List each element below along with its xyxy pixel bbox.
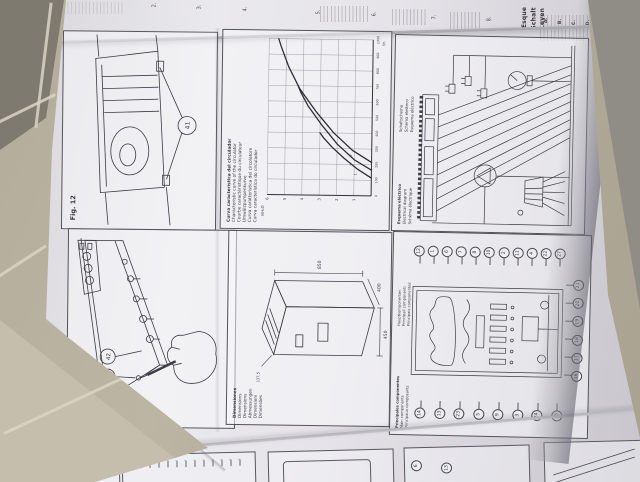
pump-curve-series-3: [277, 39, 373, 163]
pump-curve-rotated-content: Curva característica del circulador Char…: [221, 30, 392, 230]
dimension-width: 450: [383, 330, 389, 339]
dimensions-caption: Dimensões: [258, 395, 263, 418]
callout-circle: 4: [526, 248, 537, 259]
components-caption: Principaux composants: [405, 385, 410, 428]
top-strip-label: Esque: [521, 7, 528, 28]
top-strip-label: 6.: [371, 12, 377, 17]
y-tick-label: 4: [299, 197, 304, 200]
pump-curve-series-2: [297, 86, 373, 171]
y-tick-label: 5: [282, 197, 287, 200]
x-tick-label: 900: [376, 53, 380, 59]
terminal-block: [420, 95, 439, 221]
top-strip-label: 4.: [242, 7, 248, 12]
panel-fig12: Fig. 12 41: [61, 30, 218, 231]
callout-circle: 13: [434, 408, 445, 419]
tiny-text-texture: [450, 12, 480, 29]
series-label: 2: [350, 164, 354, 166]
panel-dimensions: Dimensiones Dimensions Dimensions Abmess…: [226, 230, 393, 427]
pump-curve-series-1: [319, 133, 372, 178]
top-strip-label: 5.: [315, 10, 321, 15]
dimension-lines: [261, 269, 383, 368]
x-tick-label: 1000: [376, 36, 380, 44]
boiler-side-face: [274, 281, 374, 308]
x-tick-label: 200: [374, 162, 378, 168]
electrical-caption: Schéma électrique: [407, 187, 413, 224]
fig12-label: Fig. 12: [69, 195, 77, 220]
x-tick-label: 700: [376, 84, 380, 90]
tile-grout-line: [0, 244, 47, 280]
callout-circle: 14: [414, 407, 425, 418]
callout-circle: 13: [441, 462, 452, 473]
dimensions-rotated-content: Dimensiones Dimensions Dimensions Abmess…: [227, 231, 392, 426]
callout-circle: 6: [411, 460, 422, 471]
top-strip-label: 8.: [486, 16, 492, 21]
series-label: 1: [354, 173, 358, 175]
callout-circle: 1: [428, 246, 439, 257]
next-page-panel: 6 13: [404, 444, 531, 482]
callout-circle: 6: [442, 246, 453, 257]
pump-curve-chart: Curva característica del circulador Char…: [221, 30, 392, 230]
callout-circle: 10: [484, 247, 495, 258]
panel-pump-curve: Curva característica del circulador Char…: [220, 29, 393, 231]
top-strip-label: A.: [544, 18, 549, 23]
y-tick-label: 2: [334, 198, 339, 201]
tiny-text-texture: [64, 2, 124, 14]
tiny-text-texture: [320, 6, 368, 22]
callout-42: 42: [106, 353, 112, 360]
x-tick-label: 100: [374, 177, 378, 183]
heat-exchanger: [429, 296, 456, 365]
boiler-front-face: [274, 307, 375, 356]
components-caption: Principais componentes: [407, 282, 412, 326]
tiny-text-texture: [392, 9, 426, 25]
callout-40: 40: [106, 373, 112, 381]
top-strip-label: 7.: [431, 14, 437, 19]
fig12-drawing: Fig. 12 41: [62, 31, 217, 230]
callout-number: 6: [412, 464, 421, 467]
top-strip-label: 3.: [196, 5, 202, 10]
callout-circle: 11: [512, 247, 523, 258]
y-tick-label: 3: [316, 198, 321, 201]
top-strip-label: B.: [558, 19, 563, 24]
dimension-detail: 137,5: [256, 372, 260, 382]
x-tick-label: 300: [375, 146, 379, 152]
callout-circle: 23: [453, 408, 464, 419]
callout-number: 13: [442, 465, 451, 471]
paper-crease: [215, 28, 220, 432]
plug-symbols: [445, 55, 572, 100]
callout-circle: 12: [414, 245, 425, 256]
x-tick-label: 500: [375, 115, 379, 121]
top-strip-label: 2.: [151, 3, 157, 8]
series-label: 3: [349, 154, 353, 156]
x-tick-label: 400: [375, 131, 379, 137]
callout-41: 41: [185, 121, 192, 129]
x-tick-label: 800: [376, 68, 380, 74]
y-tick-label: 1: [351, 198, 356, 201]
panel-back-drawing: [283, 459, 372, 482]
dimension-height: 850: [317, 260, 323, 269]
next-page-panel: [268, 448, 395, 482]
fig12-rotated-content: Fig. 12 41: [62, 31, 217, 230]
x-axis-unit: l/h: [382, 42, 386, 47]
dimension-depth: 400: [377, 283, 383, 292]
y-axis-unit: mH₂O: [260, 205, 265, 216]
x-tick-label: 600: [375, 99, 379, 105]
callout-circle: 8: [470, 247, 481, 258]
y-tick-label: 6: [264, 197, 269, 200]
photo-of-manual-page: 2.3.4.5.6.7.8.EsqueSchaltLeyenA.B.C.D.E.…: [0, 0, 640, 482]
gas-valve: [522, 317, 538, 341]
callout-circle: 2: [498, 247, 509, 258]
dimensions-drawing: Dimensiones Dimensions Dimensions Abmess…: [227, 231, 392, 426]
callout-circle: 7: [456, 246, 467, 257]
wire-bundle: [436, 63, 571, 214]
hand: [167, 331, 217, 384]
x-tick-label: 0: [374, 195, 378, 197]
screwdriver: [148, 361, 176, 375]
electrical-caption: Esquema eléctrico: [409, 96, 415, 133]
callout-circle: 5: [473, 409, 484, 420]
